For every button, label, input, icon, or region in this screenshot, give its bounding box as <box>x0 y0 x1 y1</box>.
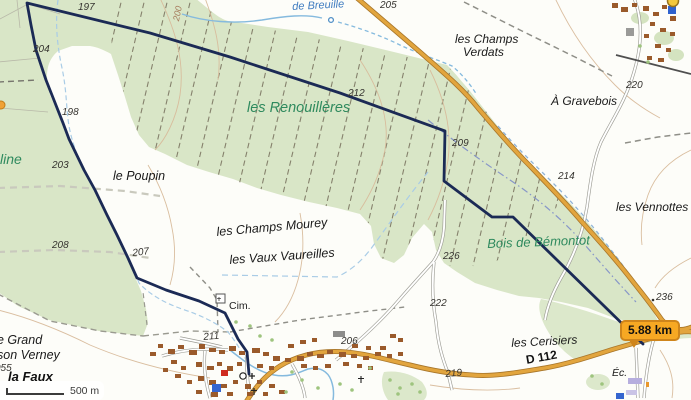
map-label: 208 <box>52 241 69 251</box>
map-label: les Cerisiers <box>511 334 578 349</box>
map-label: les Vennottes <box>616 201 688 213</box>
map-label: 222 <box>430 299 447 309</box>
map-label: 220 <box>626 81 643 91</box>
map-label: e Grand <box>0 334 42 347</box>
map-label: 055 <box>0 364 12 374</box>
map-label: 236 <box>656 293 673 303</box>
map-label: 197 <box>78 3 95 13</box>
waypoint-marker <box>668 0 679 7</box>
map-label: 214 <box>558 172 575 182</box>
map-label: 219 <box>445 369 462 380</box>
map-label: 198 <box>62 108 79 118</box>
map-label: 226 <box>443 252 460 262</box>
scale-bar-line <box>6 393 64 395</box>
map-label: 204 <box>33 45 50 55</box>
map-label: À Gravebois <box>551 95 617 107</box>
map-label: le Poupin <box>113 170 165 183</box>
map-label: Cim. <box>229 301 251 312</box>
map-label: 205 <box>380 1 397 11</box>
map-label: son Verney <box>0 349 60 362</box>
map-label: Bois de Bémontot <box>487 233 590 250</box>
map-label: les Champs <box>455 33 518 45</box>
map-label: 206 <box>341 337 358 347</box>
distance-badge-text: 5.88 km <box>628 323 672 337</box>
spring-icon <box>329 18 334 23</box>
map-label: Verdats <box>463 46 504 58</box>
map-label: 212 <box>348 89 365 99</box>
map-label: 209 <box>452 139 469 149</box>
scale-bar-label: 500 m <box>70 385 99 397</box>
map-label: line <box>0 152 22 166</box>
map-label: 211 <box>203 332 220 343</box>
map-label: Éc. <box>612 368 627 379</box>
scale-bar: 500 m <box>0 381 104 400</box>
map-container[interactable]: les RenouillèresBois de Bémontotlinede B… <box>0 0 691 400</box>
waypoint-marker <box>0 101 5 109</box>
map-label: les Renouillères <box>247 101 350 116</box>
church-icon <box>240 373 246 379</box>
map-label: 203 <box>52 161 69 171</box>
map-label: 207 <box>132 247 150 259</box>
spot-height-dot <box>652 299 655 302</box>
distance-badge: 5.88 km <box>620 320 680 341</box>
